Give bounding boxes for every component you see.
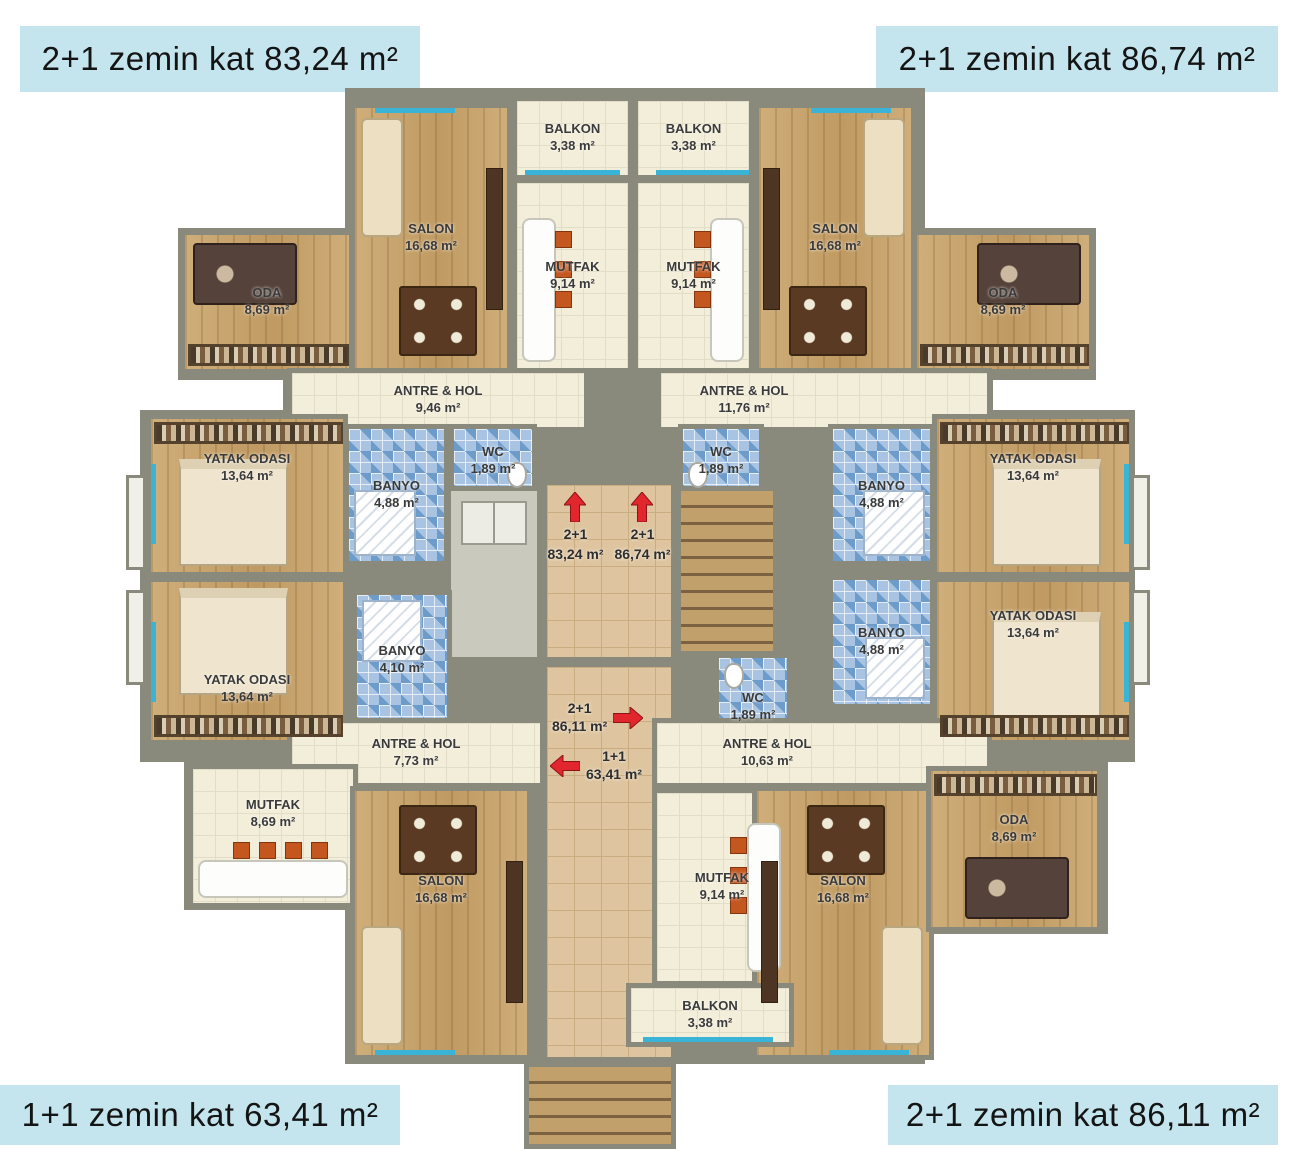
room-label: ODA 8,69 m² (245, 285, 290, 319)
room-label: MUTFAK 9,14 m² (695, 870, 749, 904)
room-label: BALKON 3,38 m² (666, 121, 722, 155)
room-label: YATAK ODASI 13,64 m² (204, 451, 290, 485)
window-sill (1124, 464, 1129, 544)
dining-table (399, 286, 477, 356)
window-sill (151, 622, 156, 702)
room-label: ANTRE & HOL 7,73 m² (372, 736, 461, 770)
wardrobe (154, 422, 344, 444)
room-banyo-sw: BANYO 4,10 m² (352, 590, 452, 730)
room-salon-nw: SALON 16,68 m² (350, 103, 512, 373)
room-yatak-se: YATAK ODASI 13,64 m² (932, 577, 1134, 745)
room-salon-ne: SALON 16,68 m² (754, 103, 916, 373)
window-sill (375, 108, 455, 113)
stair-hall-markers: 2+1 83,24 m² 2+1 86,74 m² (542, 492, 676, 562)
bar-stool (259, 842, 276, 859)
room-label: BANYO 4,88 m² (858, 625, 905, 659)
window-sill (811, 108, 891, 113)
window-sill (1124, 622, 1129, 702)
bar-stool (285, 842, 302, 859)
window-sill (829, 1050, 909, 1055)
window-sill (151, 464, 156, 544)
tv-unit (486, 168, 503, 310)
sofa (863, 118, 905, 237)
left-arrow-icon (550, 755, 580, 777)
wardrobe (920, 344, 1090, 366)
room-label: SALON 16,68 m² (405, 221, 457, 255)
room-label: YATAK ODASI 13,64 m² (204, 672, 290, 706)
room-balkon-nw: BALKON 3,38 m² (512, 96, 633, 180)
bar-stool (730, 837, 747, 854)
room-label: ODA 8,69 m² (981, 285, 1026, 319)
unit-label-bottom-right: 2+1 zemin kat 86,11 m² (888, 1085, 1278, 1145)
room-yatak-nw: YATAK ODASI 13,64 m² (146, 414, 348, 577)
room-label: MUTFAK 9,14 m² (545, 259, 599, 293)
window-sill (375, 1050, 455, 1055)
room-label: SALON 16,68 m² (415, 873, 467, 907)
room-label: BALKON 3,38 m² (545, 121, 601, 155)
up-arrow-icon (631, 492, 653, 522)
room-label: WC 1,89 m² (471, 444, 516, 478)
bar-stool (694, 291, 711, 308)
dining-table (807, 805, 885, 875)
room-label: ANTRE & HOL 10,63 m² (723, 736, 812, 770)
wardrobe (154, 715, 344, 737)
room-banyo-nw: BANYO 4,88 m² (344, 424, 449, 566)
sofa (361, 118, 403, 237)
bar-stool (694, 231, 711, 248)
unit-label-bottom-left: 1+1 zemin kat 63,41 m² (0, 1085, 400, 1145)
wardrobe (934, 774, 1098, 796)
room-mutfak-sw: MUTFAK 8,69 m² (188, 764, 358, 908)
room-salon-sw: SALON 16,68 m² (350, 786, 532, 1060)
toilet (724, 663, 744, 689)
wardrobe (188, 344, 350, 366)
room-oda-nw: ODA 8,69 m² (180, 230, 354, 374)
room-label: ODA 8,69 m² (992, 812, 1037, 846)
unit-label-top-left: 2+1 zemin kat 83,24 m² (20, 26, 420, 92)
room-label: ANTRE & HOL 9,46 m² (394, 383, 483, 417)
room-yatak-sw: YATAK ODASI 13,64 m² (146, 577, 348, 745)
room-label: BANYO 4,88 m² (373, 478, 420, 512)
bar-stool (555, 231, 572, 248)
dining-table (399, 805, 477, 875)
wardrobe (940, 422, 1130, 444)
window-ledge (126, 475, 146, 570)
unit-marker-left: 1+1 63,41 m² (550, 748, 642, 783)
window-ledge (126, 590, 146, 685)
room-mutfak-nw: MUTFAK 9,14 m² (512, 178, 633, 373)
tv-unit (761, 861, 778, 1003)
room-label: YATAK ODASI 13,64 m² (990, 451, 1076, 485)
bed (965, 857, 1069, 919)
room-yatak-ne: YATAK ODASI 13,64 m² (932, 414, 1134, 577)
elevator-car (493, 501, 527, 545)
unit-marker-right: 2+1 86,11 m² (552, 700, 643, 735)
unit-label-top-right: 2+1 zemin kat 86,74 m² (876, 26, 1278, 92)
room-banyo-ne: BANYO 4,88 m² (828, 424, 935, 566)
bar-stool (311, 842, 328, 859)
tv-unit (763, 168, 780, 310)
room-label: WC 1,89 m² (731, 690, 776, 724)
bar-stool (555, 291, 572, 308)
tv-unit (506, 861, 523, 1003)
unit-marker-up-right: 2+1 86,74 m² (614, 492, 670, 562)
right-arrow-icon (613, 707, 643, 729)
room-mutfak-ne: MUTFAK 9,14 m² (633, 178, 754, 373)
room-oda-se: ODA 8,69 m² (926, 766, 1102, 932)
staircase (676, 486, 778, 656)
elevator-car (461, 501, 495, 545)
window-sill (643, 1037, 773, 1042)
wardrobe (940, 715, 1130, 737)
room-label: SALON 16,68 m² (809, 221, 861, 255)
room-label: WC 1,89 m² (699, 444, 744, 478)
window-sill (656, 170, 751, 175)
sofa (881, 926, 923, 1045)
room-label: MUTFAK 8,69 m² (246, 797, 300, 831)
room-oda-ne: ODA 8,69 m² (912, 230, 1094, 374)
unit-marker-up-left: 2+1 83,24 m² (547, 492, 603, 562)
sofa (361, 926, 403, 1045)
bar-stool (233, 842, 250, 859)
kitchen-counter (198, 860, 348, 898)
up-arrow-icon (564, 492, 586, 522)
room-label: SALON 16,68 m² (817, 873, 869, 907)
entrance-steps (524, 1062, 676, 1149)
room-label: BALKON 3,38 m² (682, 998, 738, 1032)
room-label: BANYO 4,88 m² (858, 478, 905, 512)
elevator-shaft (446, 486, 542, 662)
window-sill (525, 170, 620, 175)
room-label: YATAK ODASI 13,64 m² (990, 608, 1076, 642)
room-label: ANTRE & HOL 11,76 m² (700, 383, 789, 417)
room-banyo-se: BANYO 4,88 m² (828, 575, 935, 709)
dining-table (789, 286, 867, 356)
room-label: BANYO 4,10 m² (379, 643, 426, 677)
room-balkon-ne: BALKON 3,38 m² (633, 96, 754, 180)
room-label: MUTFAK 9,14 m² (666, 259, 720, 293)
floor-plan-canvas: 2+1 zemin kat 83,24 m² 2+1 zemin kat 86,… (0, 0, 1300, 1149)
